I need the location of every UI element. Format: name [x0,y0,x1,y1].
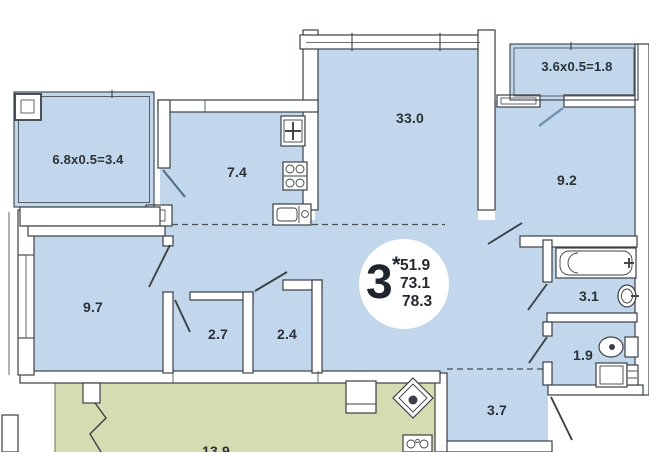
column-marker [15,94,41,120]
wall [28,226,165,236]
apartment-badge: 3 * 51.9 73.1 78.3 [359,239,449,329]
center-area [25,220,547,378]
wall [520,236,637,247]
label-living: 33.0 [396,110,424,126]
counter-sink-icon [273,204,311,225]
label-wardrobe-right: 2.4 [277,326,297,342]
wall [163,236,173,246]
wall-stub [83,383,100,403]
badge-area-living: 51.9 [400,257,431,274]
kitchen-sink-icon [281,116,305,146]
label-balcony-left: 6.8x0.5=3.4 [52,152,124,167]
wall-bottom [20,371,440,383]
wall [243,292,253,373]
label-balcony-right: 3.6x0.5=1.8 [541,59,612,74]
badge-area-total: 78.3 [402,293,433,310]
label-wc: 1.9 [573,347,593,363]
washing-machine-icon [596,363,638,387]
wall [478,30,495,210]
wall [543,362,552,385]
neighbor-stove-icon [403,435,432,452]
wall [312,280,322,373]
floor-plan: 6.8x0.5=3.4 7.4 33.0 3.6x0.5=1.8 9.2 9.7… [0,0,649,452]
wall [543,322,552,336]
wall [435,373,447,452]
badge-area-main: 73.1 [400,275,431,292]
wall-top-window [300,35,483,49]
entrance-door [551,397,572,440]
wall [497,95,540,107]
wall [20,207,160,226]
floor-plan-page: 6.8x0.5=3.4 7.4 33.0 3.6x0.5=1.8 9.2 9.7… [0,0,649,452]
wall [543,240,552,282]
stove-icon [283,162,307,190]
wall [547,313,637,322]
label-wardrobe-left: 2.7 [208,326,228,342]
label-bathroom: 3.1 [579,288,599,304]
label-kitchen: 7.4 [227,164,247,180]
wall [564,95,646,107]
label-hallway: 3.7 [487,402,507,418]
wall-fragment [2,415,18,452]
wall [158,100,318,112]
neighbor-area [55,378,445,452]
wall [163,292,173,373]
wall [158,100,170,168]
wall [438,441,552,452]
badge-rooms-count: 3 [366,256,393,309]
bathtub-icon [556,248,636,278]
label-bedroom-right: 9.2 [557,172,577,188]
living-area [315,42,478,238]
label-neighbor-room: 13.9 [202,443,230,452]
neighbor-counter-icon [346,381,376,413]
toilet-icon [599,337,638,357]
label-bedroom-left: 9.7 [83,299,103,315]
